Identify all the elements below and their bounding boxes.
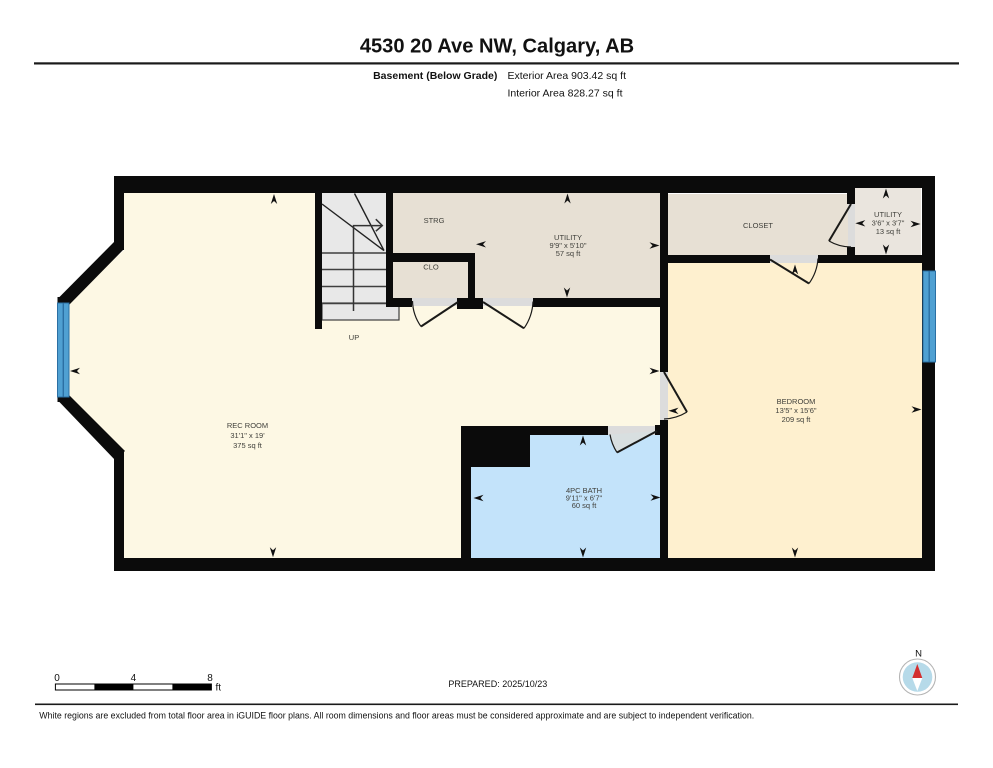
svg-text:PREPARED: 2025/10/23: PREPARED: 2025/10/23 (448, 679, 547, 689)
svg-text:4530 20 Ave NW, Calgary, AB: 4530 20 Ave NW, Calgary, AB (360, 36, 634, 58)
svg-text:CLOSET: CLOSET (743, 221, 773, 230)
svg-text:STRG: STRG (424, 216, 445, 225)
svg-text:0: 0 (54, 673, 60, 684)
svg-text:4: 4 (131, 673, 137, 684)
svg-text:ft: ft (216, 683, 222, 694)
svg-text:13 sq ft: 13 sq ft (876, 227, 902, 236)
svg-text:8: 8 (207, 673, 213, 684)
svg-text:REC ROOM: REC ROOM (227, 421, 268, 430)
svg-text:Exterior Area 903.42 sq ft: Exterior Area 903.42 sq ft (508, 70, 627, 82)
svg-text:White regions are excluded fro: White regions are excluded from total fl… (39, 711, 754, 721)
svg-text:BEDROOM: BEDROOM (777, 397, 816, 406)
svg-text:N: N (915, 649, 922, 660)
svg-text:57 sq ft: 57 sq ft (556, 249, 582, 258)
svg-text:31'1" x 19': 31'1" x 19' (230, 431, 265, 440)
svg-text:375 sq ft: 375 sq ft (233, 441, 263, 450)
svg-text:13'5" x 15'6": 13'5" x 15'6" (775, 406, 816, 415)
svg-text:60 sq ft: 60 sq ft (572, 501, 598, 510)
svg-text:UP: UP (349, 333, 359, 342)
svg-text:Basement (Below Grade): Basement (Below Grade) (373, 70, 497, 82)
svg-text:Interior Area 828.27 sq ft: Interior Area 828.27 sq ft (508, 88, 623, 100)
svg-text:209 sq ft: 209 sq ft (782, 415, 812, 424)
svg-text:CLO: CLO (423, 263, 439, 272)
